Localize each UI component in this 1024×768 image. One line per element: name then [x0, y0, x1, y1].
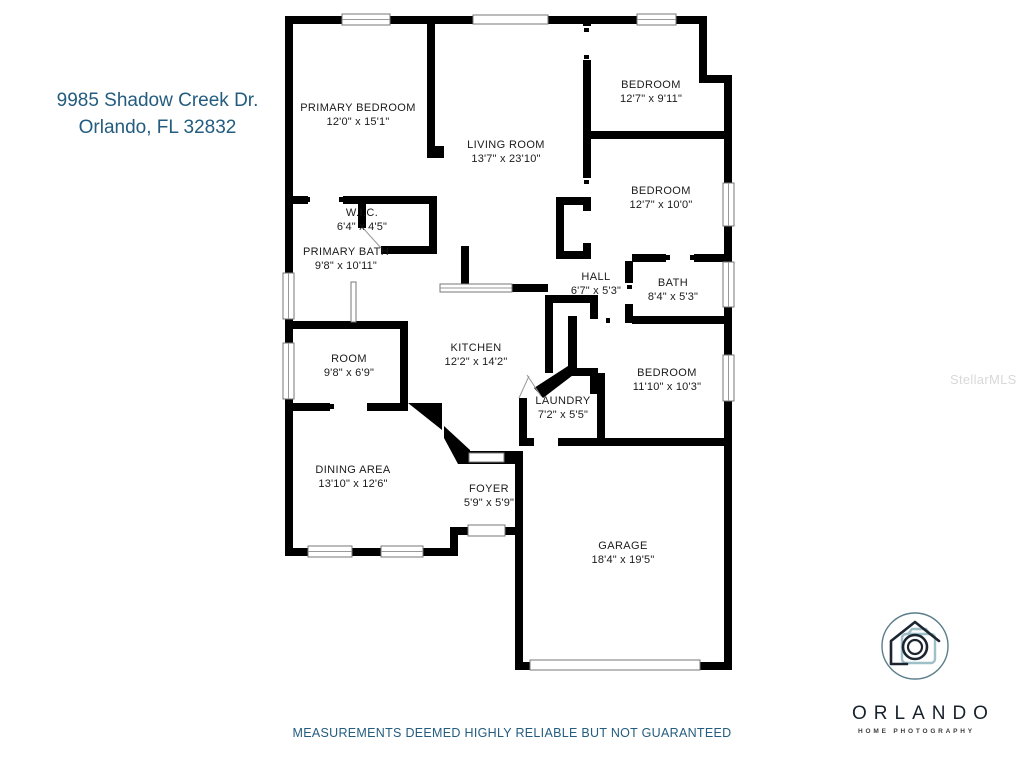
room-label-garage: GARAGE 18'4" x 19'5": [592, 540, 655, 566]
room-label-wic: W.I.C. 6'4" x 4'5": [337, 207, 387, 233]
floorplan-page: 9985 Shadow Creek Dr. Orlando, FL 32832: [0, 0, 1024, 768]
room-label-hall: HALL 6'7" x 5'3": [571, 271, 621, 297]
room-dims: 9'8" x 10'11": [303, 260, 389, 272]
room-name: GARAGE: [592, 540, 655, 552]
room-dims: 13'10" x 12'6": [315, 478, 390, 490]
room-dims: 12'0" x 15'1": [300, 116, 416, 128]
room-name: BEDROOM: [633, 367, 701, 379]
room-dims: 6'7" x 5'3": [571, 285, 621, 297]
room-dims: 12'2" x 14'2": [445, 356, 508, 368]
room-name: LIVING ROOM: [467, 139, 545, 151]
room-label-primary-bath: PRIMARY BATH 9'8" x 10'11": [303, 246, 389, 272]
room-label-laundry: LAUNDRY 7'2" x 5'5": [535, 395, 590, 421]
mls-watermark: StellarMLS: [950, 372, 1017, 387]
room-dims: 11'10" x 10'3": [633, 381, 701, 393]
room-label-bath: BATH 8'4" x 5'3": [648, 277, 698, 303]
room-name: KITCHEN: [445, 342, 508, 354]
room-dims: 8'4" x 5'3": [648, 291, 698, 303]
room-name: ROOM: [324, 353, 374, 365]
room-label-kitchen: KITCHEN 12'2" x 14'2": [445, 342, 508, 368]
room-label-bedroom-2: BEDROOM 12'7" x 10'0": [630, 185, 693, 211]
room-label-bedroom-1: BEDROOM 12'7" x 9'11": [620, 79, 682, 105]
room-name: W.I.C.: [337, 207, 387, 219]
room-name: HALL: [571, 271, 621, 283]
room-dims: 5'9" x 5'9": [464, 497, 514, 509]
room-name: PRIMARY BEDROOM: [300, 102, 416, 114]
room-dims: 7'2" x 5'5": [535, 409, 590, 421]
photographer-logo: ORLANDO HOME PHOTOGRAPHY: [845, 600, 985, 735]
logo-house-camera-icon: [845, 600, 985, 696]
room-name: FOYER: [464, 483, 514, 495]
room-label-living-room: LIVING ROOM 13'7" x 23'10": [467, 139, 545, 165]
room-dims: 9'8" x 6'9": [324, 367, 374, 379]
logo-brand-text: ORLANDO: [845, 703, 985, 725]
room-name: BATH: [648, 277, 698, 289]
room-dims: 6'4" x 4'5": [337, 221, 387, 233]
room-label-room: ROOM 9'8" x 6'9": [324, 353, 374, 379]
room-dims: 13'7" x 23'10": [467, 153, 545, 165]
room-name: LAUNDRY: [535, 395, 590, 407]
room-dims: 12'7" x 10'0": [630, 199, 693, 211]
room-label-dining-area: DINING AREA 13'10" x 12'6": [315, 464, 390, 490]
room-dims: 18'4" x 19'5": [592, 554, 655, 566]
room-label-primary-bedroom: PRIMARY BEDROOM 12'0" x 15'1": [300, 102, 416, 128]
measurements-disclaimer: MEASUREMENTS DEEMED HIGHLY RELIABLE BUT …: [0, 726, 1024, 740]
room-label-foyer: FOYER 5'9" x 5'9": [464, 483, 514, 509]
room-dims: 12'7" x 9'11": [620, 93, 682, 105]
room-name: BEDROOM: [630, 185, 693, 197]
room-name: DINING AREA: [315, 464, 390, 476]
room-name: BEDROOM: [620, 79, 682, 91]
room-label-bedroom-3: BEDROOM 11'10" x 10'3": [633, 367, 701, 393]
room-name: PRIMARY BATH: [303, 246, 389, 258]
